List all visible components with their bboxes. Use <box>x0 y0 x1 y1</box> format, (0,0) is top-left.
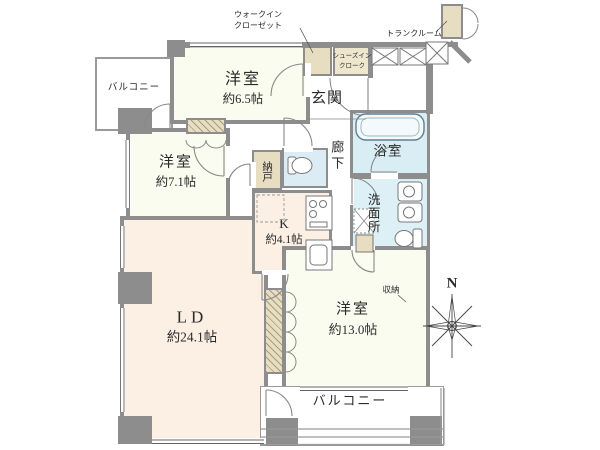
room-toilet <box>282 148 328 188</box>
door-opening <box>284 147 313 152</box>
label-bathroom: 浴室 <box>374 144 403 161</box>
box-trunk-room <box>441 4 463 39</box>
column <box>118 108 152 134</box>
label-walk-in-closet: ウォークイン クローゼット <box>234 9 282 31</box>
label-balcony-left: バルコニー <box>108 82 160 94</box>
door-opening <box>251 162 256 188</box>
door-opening <box>226 146 232 178</box>
door-opening <box>351 246 375 250</box>
wall-top <box>168 42 458 47</box>
wall-right-upper <box>426 60 433 114</box>
door-opening <box>349 178 354 205</box>
closet-bedroom-13 <box>264 288 284 374</box>
column <box>266 418 298 446</box>
label-bedroom-13-size: 約13.0帖 <box>329 322 378 338</box>
door-opening <box>262 270 289 275</box>
label-trunk-room: トランクルーム <box>386 29 442 39</box>
label-living-dining-name: LD <box>177 306 208 327</box>
label-bedroom-71-name: 洋室 <box>159 154 193 173</box>
trunk-door-arcs <box>463 8 478 39</box>
column <box>118 416 152 444</box>
label-bedroom-71-size: 約7.1帖 <box>156 175 197 191</box>
label-corridor: 廊下 <box>328 132 344 180</box>
closet-bedroom-71 <box>186 118 226 134</box>
label-compass-north: N <box>447 275 458 294</box>
column <box>118 272 152 304</box>
column <box>167 40 185 57</box>
label-shuno: 収納 <box>382 285 399 296</box>
compass-icon <box>423 294 481 358</box>
label-balcony-bottom: バルコニー <box>313 393 388 409</box>
label-bedroom-13-name: 洋室 <box>336 301 370 320</box>
label-living-dining-size: 約24.1帖 <box>167 330 218 347</box>
door-opening <box>371 173 398 179</box>
label-entrance: 玄関 <box>311 90 343 109</box>
label-kitchen-size: 約4.1帖 <box>265 233 302 247</box>
label-shoes-in-cloak: シューズイン クローク <box>333 51 372 71</box>
label-washroom: 洗面所 <box>364 182 380 244</box>
label-nando: 納戸 <box>260 154 273 188</box>
label-bedroom-65-name: 洋室 <box>225 70 261 90</box>
label-kitchen-name: K <box>279 216 288 232</box>
door-opening <box>263 390 269 416</box>
label-bedroom-65-size: 約6.5帖 <box>223 92 264 108</box>
floorplan-page: { "colors": { "wall_gray": "#8d8d8d", "r… <box>0 0 600 450</box>
room-bedroom-7-1 <box>126 128 230 220</box>
room-washroom <box>350 176 430 250</box>
column <box>410 416 442 446</box>
